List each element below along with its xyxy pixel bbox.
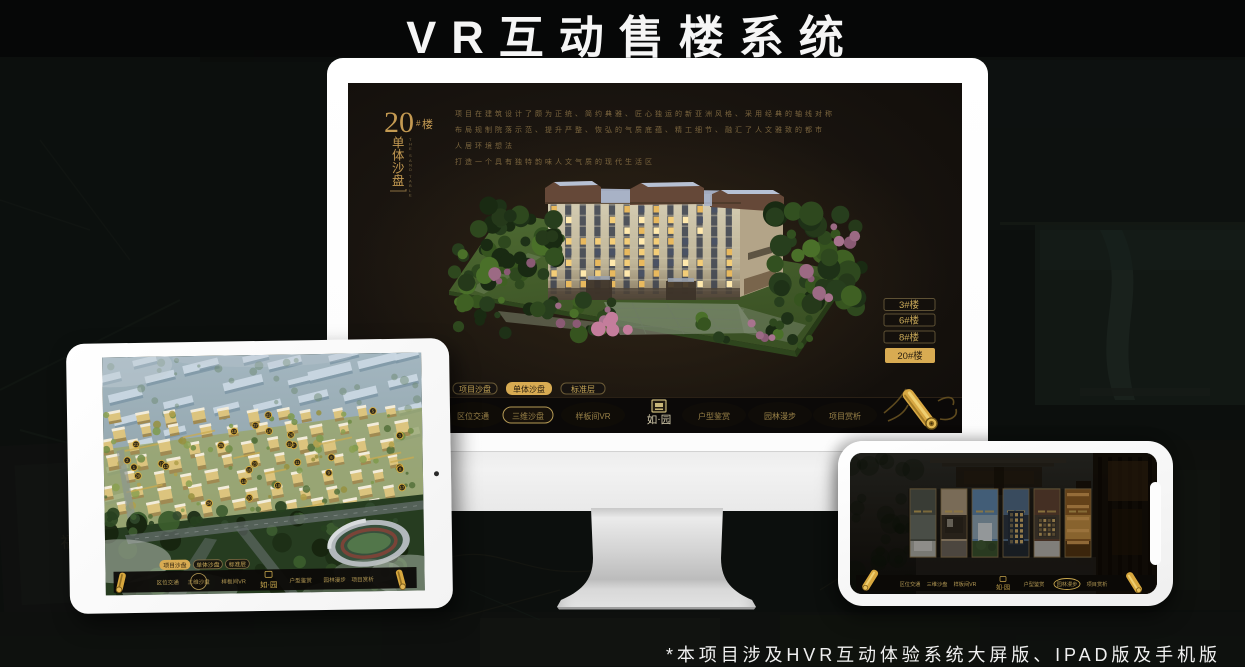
- svg-text:项目赏析: 项目赏析: [1087, 580, 1108, 588]
- svg-text:10: 10: [275, 483, 280, 488]
- svg-text:样板间VR: 样板间VR: [954, 580, 977, 588]
- svg-text:19: 19: [247, 467, 252, 472]
- svg-text:单体沙盘: 单体沙盘: [513, 384, 545, 394]
- svg-text:15: 15: [287, 442, 292, 447]
- svg-text:如·园: 如·园: [996, 584, 1010, 592]
- svg-text:27: 27: [253, 423, 258, 428]
- svg-text:样板间VR: 样板间VR: [575, 411, 610, 421]
- svg-text:3#楼: 3#楼: [899, 299, 920, 311]
- svg-text:人居环境想法: 人居环境想法: [455, 141, 515, 150]
- svg-text:标准层: 标准层: [571, 384, 595, 394]
- svg-text:区位交通: 区位交通: [900, 580, 922, 588]
- svg-text:18: 18: [232, 429, 237, 434]
- svg-text:26: 26: [288, 432, 293, 437]
- svg-text:23: 23: [252, 461, 257, 466]
- svg-text:13: 13: [163, 464, 168, 469]
- svg-text:28: 28: [136, 473, 141, 478]
- svg-text:8#楼: 8#楼: [899, 332, 920, 344]
- svg-text:区位交通: 区位交通: [457, 411, 489, 421]
- svg-text:项目沙盘: 项目沙盘: [459, 384, 491, 394]
- svg-text:标准层: 标准层: [229, 560, 247, 568]
- svg-text:20: 20: [247, 495, 252, 500]
- svg-text:布局规制院落示范、提升严整、恢弘的气质底蕴、精工细节、融汇了: 布局规制院落示范、提升严整、恢弘的气质底蕴、精工细节、融汇了人文雅致的都市: [455, 125, 825, 134]
- svg-text:16: 16: [267, 429, 272, 434]
- svg-text:户型鉴赏: 户型鉴赏: [698, 411, 730, 421]
- svg-text:如·园: 如·园: [647, 413, 672, 426]
- svg-text:单体沙盘: 单体沙盘: [392, 136, 405, 188]
- svg-text:14: 14: [241, 479, 246, 484]
- svg-text:21: 21: [134, 442, 139, 447]
- svg-text:园林漫步: 园林漫步: [1057, 580, 1078, 588]
- svg-text:#: #: [416, 119, 421, 128]
- svg-text:户型鉴赏: 户型鉴赏: [1024, 580, 1045, 588]
- svg-text:打造一个具有独特韵味人文气质的现代生活区: 打造一个具有独特韵味人文气质的现代生活区: [455, 157, 655, 166]
- svg-text:楼: 楼: [422, 117, 433, 131]
- svg-text:20#楼: 20#楼: [897, 350, 923, 362]
- svg-text:11: 11: [295, 460, 300, 465]
- svg-text:三维沙盘: 三维沙盘: [927, 580, 948, 588]
- svg-text:三维沙盘: 三维沙盘: [512, 411, 544, 421]
- svg-text:25: 25: [219, 443, 224, 448]
- svg-text:项目赏析: 项目赏析: [829, 411, 861, 421]
- svg-text:22: 22: [266, 413, 271, 418]
- svg-text:24: 24: [207, 501, 212, 506]
- svg-text:如·园: 如·园: [260, 579, 278, 589]
- svg-text:项目在建筑设计了颇为正统、简约典雅、匠心独运的新亚洲风格、采: 项目在建筑设计了颇为正统、简约典雅、匠心独运的新亚洲风格、采用经典的轴线对称: [455, 109, 835, 118]
- svg-text:园林漫步: 园林漫步: [764, 411, 796, 421]
- svg-text:17: 17: [400, 485, 405, 490]
- svg-text:6#楼: 6#楼: [899, 315, 920, 327]
- svg-text:20: 20: [384, 106, 414, 139]
